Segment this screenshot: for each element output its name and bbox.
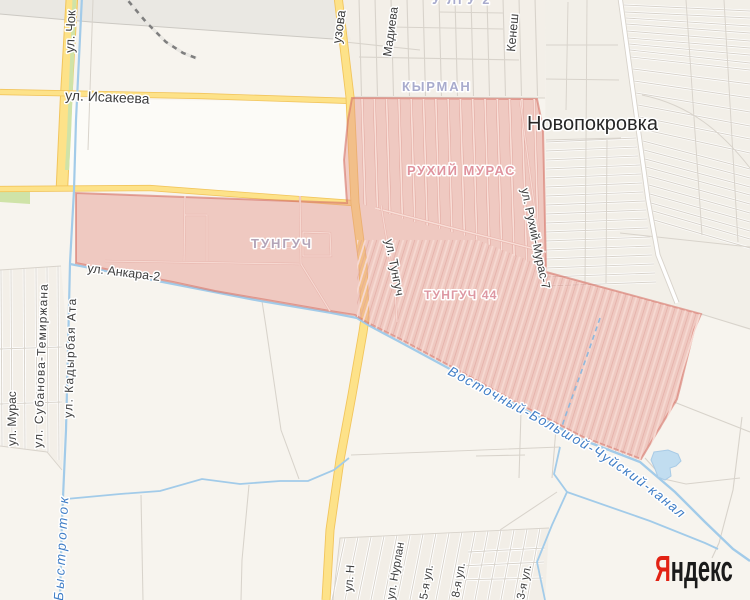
svg-text:У ЛГУ 2: У ЛГУ 2 [432,0,491,7]
svg-text:ул. Чок: ул. Чок [62,10,78,53]
svg-text:ТУНГУЧ: ТУНГУЧ [251,236,313,251]
svg-text:РУХИЙ МУРАС: РУХИЙ МУРАС [407,163,516,178]
svg-text:Новопокровка: Новопокровка [527,113,659,135]
svg-text:ТУНГУЧ 44: ТУНГУЧ 44 [424,288,498,302]
svg-text:Яндекс: Яндекс [655,549,733,589]
svg-text:ул. Н: ул. Н [343,564,357,592]
svg-text:КЫРМАН: КЫРМАН [402,79,472,94]
svg-text:ул. Мурас: ул. Мурас [5,391,19,446]
